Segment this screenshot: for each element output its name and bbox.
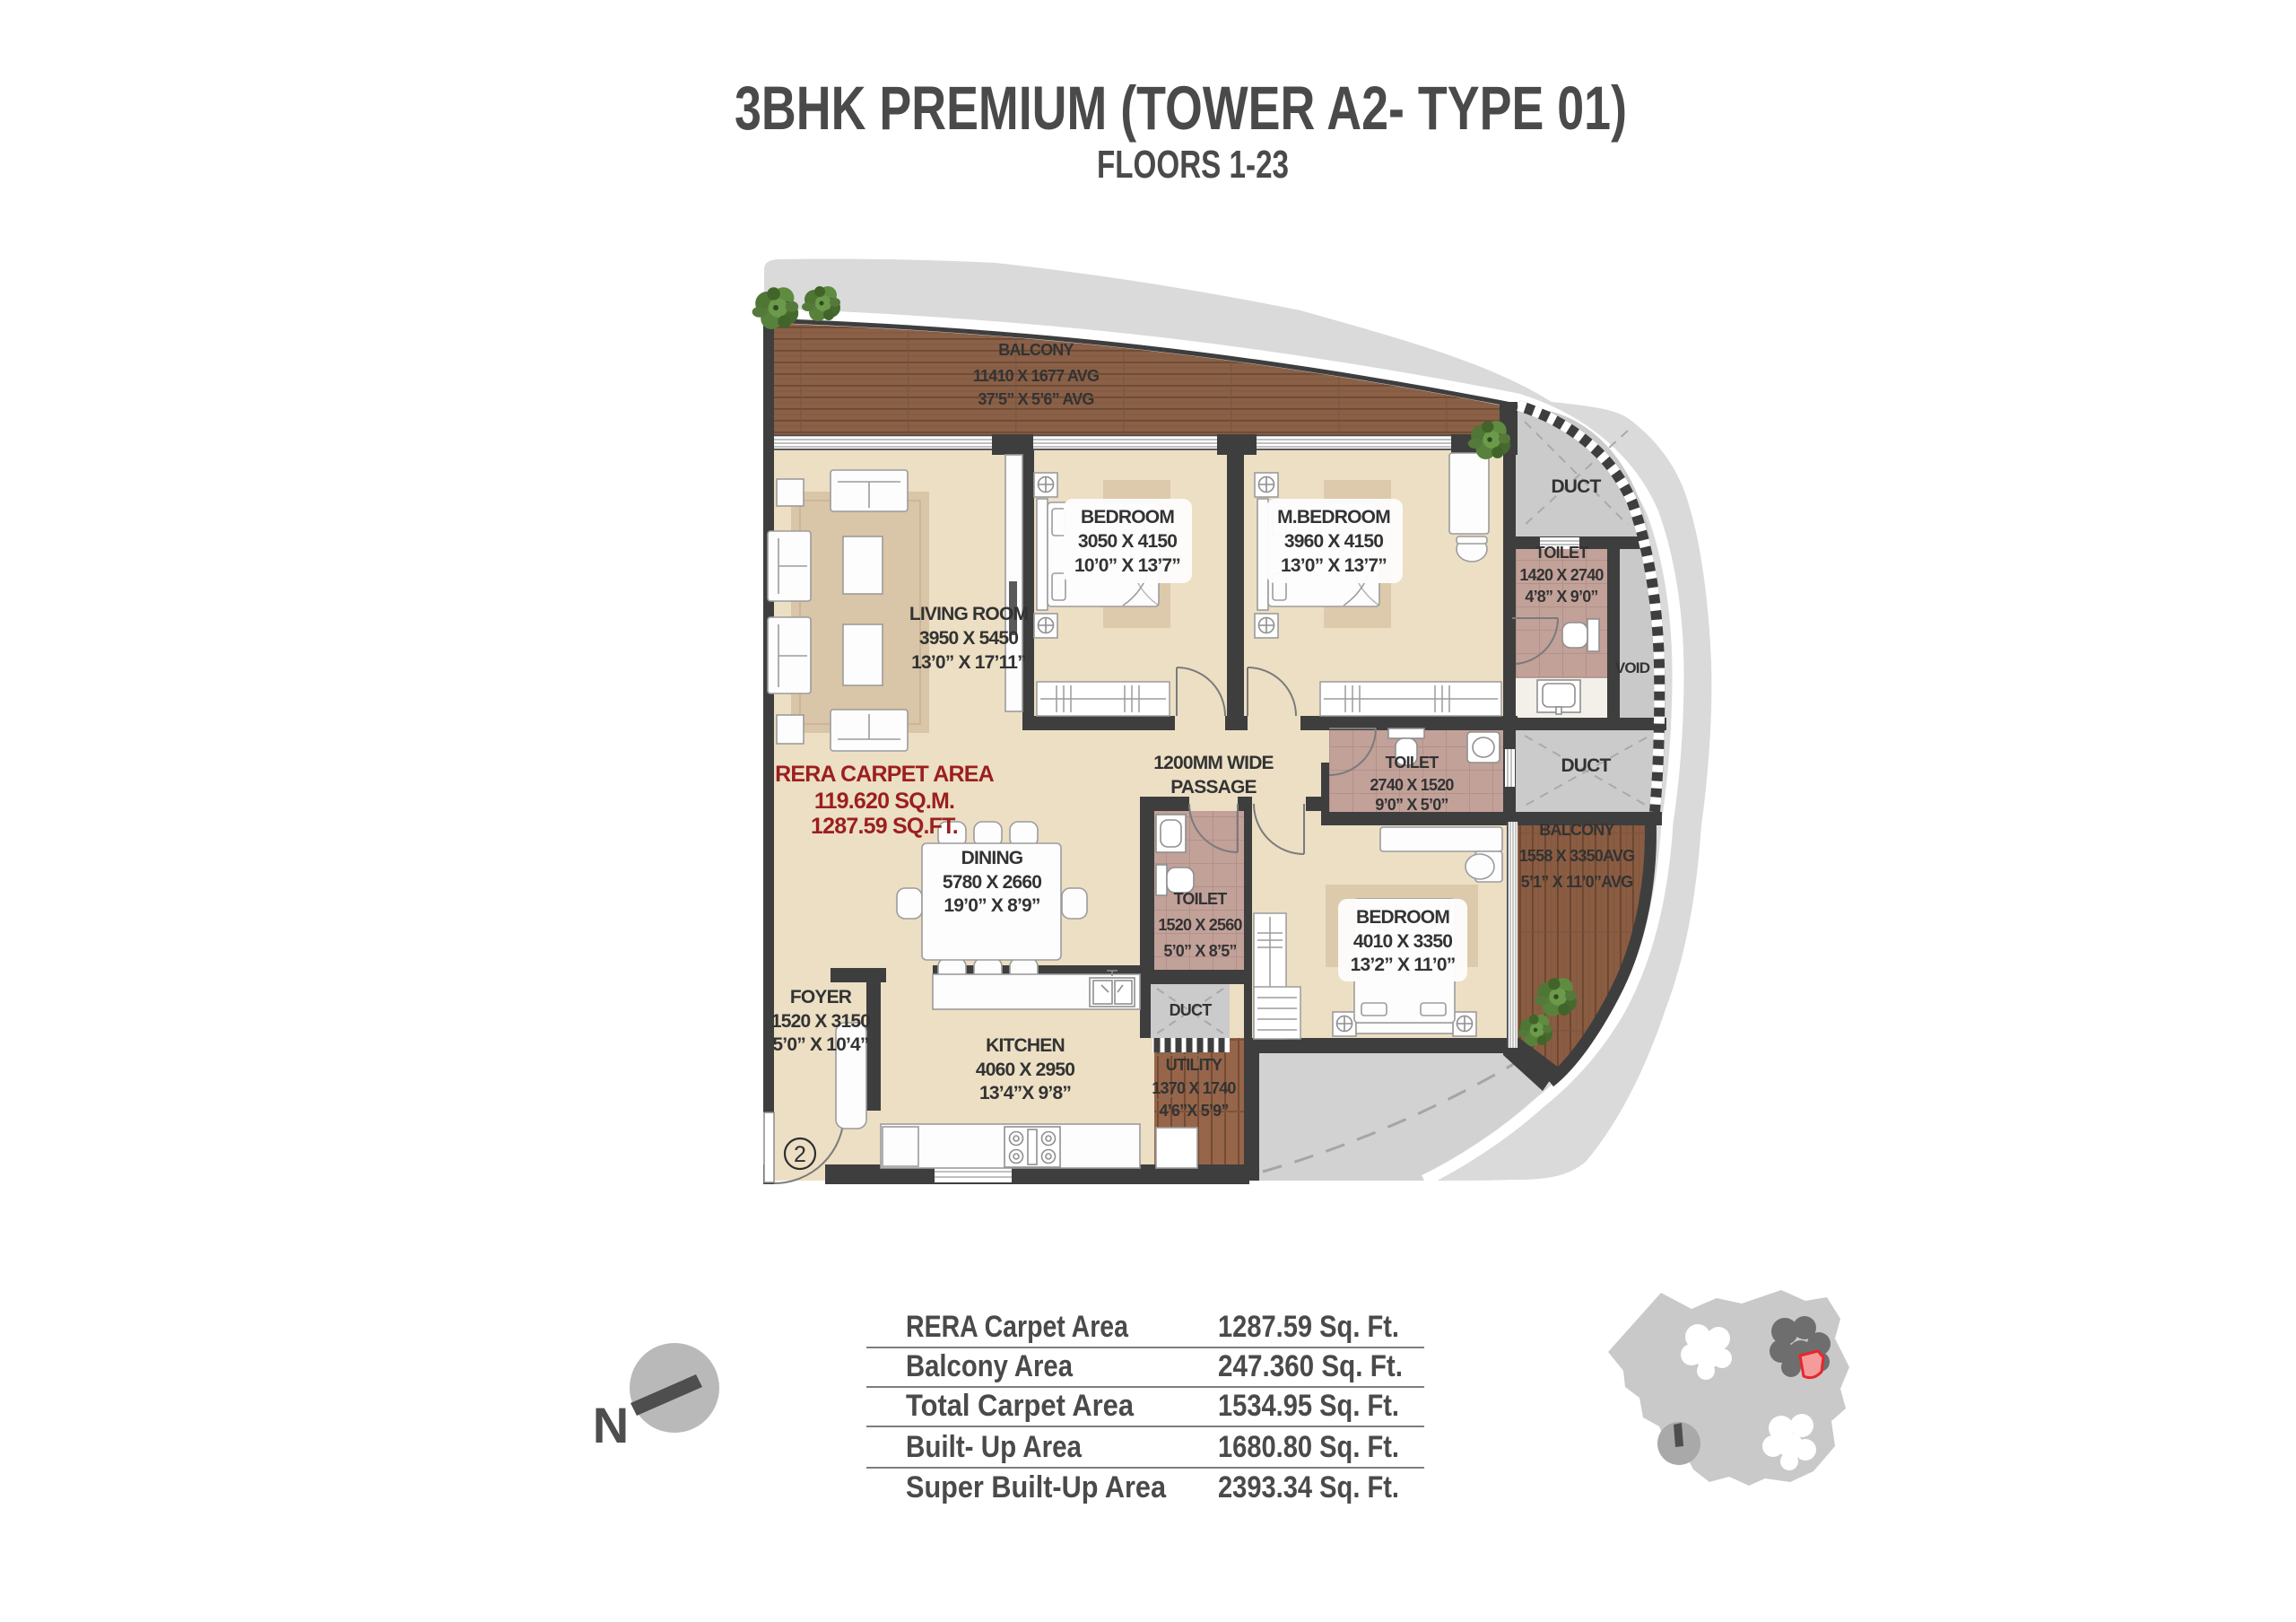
svg-text:1680.80 Sq. Ft.: 1680.80 Sq. Ft. [1218,1430,1399,1464]
svg-text:4’8” X 9’0”: 4’8” X 9’0” [1525,588,1597,606]
svg-text:FLOORS 1-23: FLOORS 1-23 [1097,143,1289,187]
svg-text:2: 2 [794,1142,806,1167]
svg-text:10’0” X 13’7”: 10’0” X 13’7” [1074,555,1180,576]
svg-text:RERA Carpet Area: RERA Carpet Area [906,1310,1129,1344]
svg-text:UTILITY: UTILITY [1166,1056,1222,1074]
svg-text:4010 X 3350: 4010 X 3350 [1353,931,1452,952]
svg-text:13’0” X 13’7”: 13’0” X 13’7” [1281,555,1387,576]
svg-text:37’5” X 5’6” AVG: 37’5” X 5’6” AVG [978,390,1093,408]
svg-text:5’0” X 8’5”: 5’0” X 8’5” [1163,942,1236,960]
svg-text:M.BEDROOM: M.BEDROOM [1277,507,1390,528]
svg-text:2740 X 1520: 2740 X 1520 [1370,776,1454,794]
svg-text:3960 X 4150: 3960 X 4150 [1284,531,1383,552]
svg-text:1370 X 1740: 1370 X 1740 [1152,1079,1236,1097]
svg-text:KITCHEN: KITCHEN [986,1035,1065,1056]
svg-text:5’1” X 11’0”AVG: 5’1” X 11’0”AVG [1521,873,1633,891]
svg-text:N: N [593,1397,629,1453]
svg-text:1200MM WIDE: 1200MM WIDE [1153,753,1274,773]
svg-text:247.360 Sq. Ft.: 247.360 Sq. Ft. [1218,1349,1403,1383]
svg-text:TOILET: TOILET [1535,544,1589,562]
svg-text:1287.59 SQ.FT.: 1287.59 SQ.FT. [811,814,958,839]
svg-text:BALCONY: BALCONY [1539,821,1614,839]
svg-text:LIVING ROOM: LIVING ROOM [909,604,1029,624]
svg-text:Total Carpet Area: Total Carpet Area [906,1389,1135,1423]
svg-text:5780 X 2660: 5780 X 2660 [943,872,1041,893]
svg-text:RERA CARPET AREA: RERA CARPET AREA [775,762,994,787]
svg-text:9’0” X 5’0”: 9’0” X 5’0” [1375,796,1448,814]
svg-text:1558 X 3350AVG: 1558 X 3350AVG [1519,847,1635,865]
svg-text:13’0” X 17’11”: 13’0” X 17’11” [911,652,1026,673]
svg-text:1420 X 2740: 1420 X 2740 [1519,566,1604,584]
svg-text:DUCT: DUCT [1551,476,1601,497]
svg-text:3950 X 5450: 3950 X 5450 [919,628,1018,649]
svg-text:1534.95 Sq. Ft.: 1534.95 Sq. Ft. [1218,1389,1399,1423]
svg-text:BEDROOM: BEDROOM [1356,907,1449,928]
svg-text:2393.34 Sq. Ft.: 2393.34 Sq. Ft. [1218,1470,1399,1504]
svg-text:PASSAGE: PASSAGE [1170,777,1257,798]
svg-text:11410 X 1677 AVG: 11410 X 1677 AVG [973,367,1099,385]
svg-text:1287.59 Sq. Ft.: 1287.59 Sq. Ft. [1218,1310,1399,1344]
svg-text:Built- Up Area: Built- Up Area [906,1430,1083,1464]
svg-text:DINING: DINING [961,848,1023,868]
svg-text:13’2” X 11’0”: 13’2” X 11’0” [1351,955,1456,975]
svg-text:119.620 SQ.M.: 119.620 SQ.M. [814,789,954,814]
svg-text:13’4”X 9’8”: 13’4”X 9’8” [979,1083,1071,1103]
svg-text:TOILET: TOILET [1174,890,1228,908]
svg-text:3050 X 4150: 3050 X 4150 [1078,531,1177,552]
svg-text:Super Built-Up Area: Super Built-Up Area [906,1470,1167,1504]
svg-text:BALCONY: BALCONY [998,341,1074,359]
svg-text:1520 X 2560: 1520 X 2560 [1158,916,1242,934]
svg-text:5’0” X 10’4”: 5’0” X 10’4” [772,1034,868,1055]
svg-text:Balcony Area: Balcony Area [906,1349,1074,1383]
svg-text:FOYER: FOYER [790,987,852,1007]
svg-text:19’0” X 8’9”: 19’0” X 8’9” [944,895,1039,916]
svg-text:VOID: VOID [1615,659,1650,676]
svg-text:TOILET: TOILET [1386,754,1439,772]
svg-text:1520 X 3150: 1520 X 3150 [771,1011,870,1032]
svg-text:DUCT: DUCT [1170,1001,1213,1019]
svg-text:4060 X 2950: 4060 X 2950 [976,1060,1074,1080]
svg-text:DUCT: DUCT [1561,755,1611,776]
svg-text:4’6”X 5’9”: 4’6”X 5’9” [1159,1102,1228,1120]
svg-text:3BHK PREMIUM (TOWER A2- TYPE 0: 3BHK PREMIUM (TOWER A2- TYPE 01) [735,74,1627,143]
svg-text:BEDROOM: BEDROOM [1081,507,1174,528]
